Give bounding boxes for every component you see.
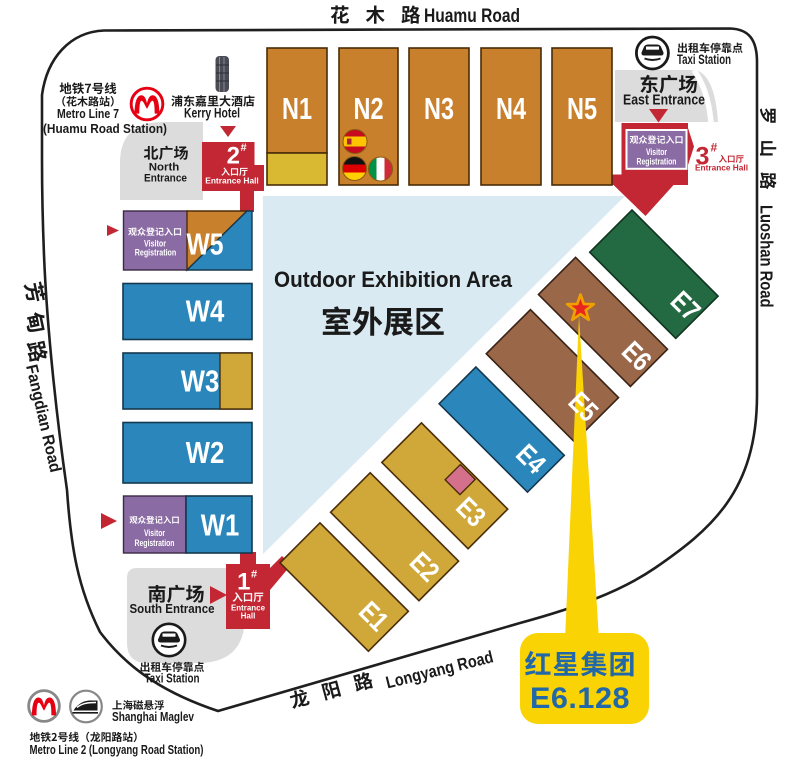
svg-text:W1: W1	[201, 508, 240, 543]
svg-text:Registration: Registration	[637, 157, 677, 167]
svg-text:Huamu Road: Huamu Road	[424, 6, 520, 27]
svg-text:W3: W3	[181, 364, 220, 399]
svg-text:Hall: Hall	[241, 612, 256, 621]
svg-text:N4: N4	[496, 91, 527, 126]
svg-text:Luoshan Road: Luoshan Road	[757, 205, 777, 308]
svg-text:#: #	[251, 569, 257, 581]
svg-text:Taxi Station: Taxi Station	[677, 52, 731, 67]
svg-text:N3: N3	[424, 91, 454, 126]
svg-text:E6.128: E6.128	[530, 682, 630, 715]
svg-text:Metro Line 7: Metro Line 7	[57, 107, 119, 121]
svg-text:Visitor: Visitor	[144, 528, 165, 538]
svg-text:Metro Line 2 (Longyang Road St: Metro Line 2 (Longyang Road Station)	[30, 742, 204, 757]
svg-text:Registration: Registration	[135, 538, 175, 548]
svg-text:N5: N5	[567, 91, 597, 126]
svg-text:Taxi Station: Taxi Station	[145, 672, 200, 686]
svg-text:Kerry Hotel: Kerry Hotel	[184, 106, 240, 121]
svg-text:Entrance Hall: Entrance Hall	[695, 163, 748, 173]
svg-text:W5: W5	[187, 227, 224, 262]
svg-text:1: 1	[237, 569, 250, 596]
svg-text:Visitor: Visitor	[646, 147, 667, 157]
svg-text:Entrance Hall: Entrance Hall	[205, 175, 259, 185]
svg-text:South Entrance: South Entrance	[130, 601, 215, 616]
svg-text:#: #	[241, 142, 247, 154]
svg-text:N2: N2	[354, 91, 384, 126]
svg-text:#: #	[711, 141, 718, 155]
svg-text:Entrance: Entrance	[144, 173, 187, 185]
svg-text:N1: N1	[282, 91, 312, 126]
svg-text:Shanghai Maglev: Shanghai Maglev	[112, 710, 194, 724]
svg-text:W4: W4	[186, 294, 225, 329]
svg-text:Registration: Registration	[135, 248, 177, 258]
svg-text:Outdoor Exhibition Area: Outdoor Exhibition Area	[274, 267, 513, 292]
svg-text:2: 2	[227, 142, 240, 169]
svg-text:W2: W2	[186, 435, 225, 470]
svg-text:(Huamu Road Station): (Huamu Road Station)	[43, 122, 167, 136]
svg-text:East Entrance: East Entrance	[623, 93, 705, 109]
